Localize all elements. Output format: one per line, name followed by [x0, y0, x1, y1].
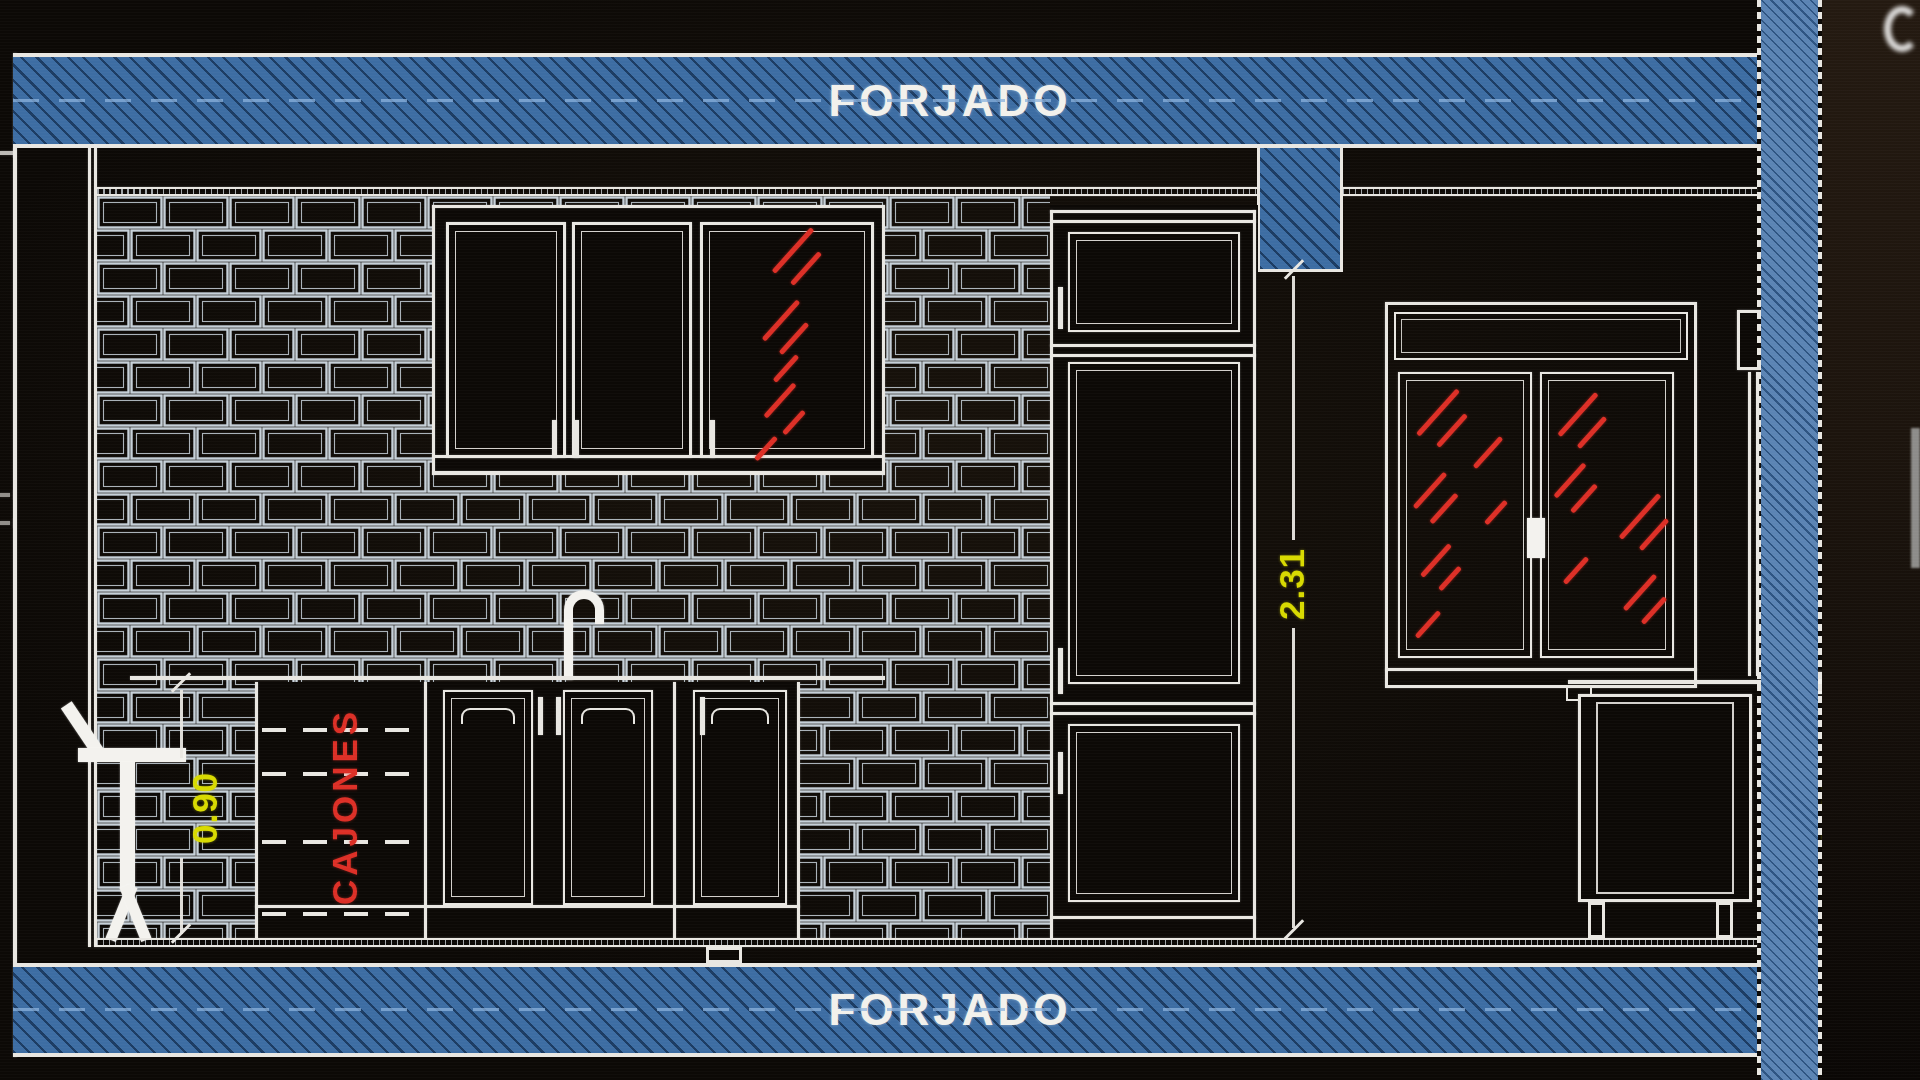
door-handle — [1058, 648, 1063, 694]
cabinet-foot — [1716, 902, 1733, 938]
drawer-unit-left — [255, 682, 258, 938]
tall-cabinet-rail — [1050, 354, 1256, 357]
door-panel-detail — [461, 708, 515, 724]
screen-glare — [1884, 6, 1920, 52]
base-unit-right — [797, 682, 800, 938]
tall-cabinet-top — [1050, 220, 1256, 223]
unit-divider — [673, 682, 676, 938]
stool-post — [120, 762, 135, 888]
drawers-label: CAJONES — [325, 725, 365, 905]
slab-centerline — [13, 1008, 1757, 1011]
ceiling-line — [97, 187, 1257, 196]
door-handle — [700, 697, 705, 735]
dim-left-line — [180, 690, 183, 758]
upper-cabinet-right — [882, 205, 885, 475]
dim-231-label: 2.31 — [1272, 539, 1312, 629]
upper-cabinet-door-2 — [572, 222, 692, 458]
edge-tick — [0, 521, 10, 525]
tall-cabinet-rail — [1050, 712, 1256, 715]
screen-edge-reflection — [1911, 428, 1920, 568]
door-panel-detail — [581, 708, 635, 724]
door-panel-detail — [711, 708, 769, 724]
right-wall-band — [1761, 0, 1818, 1080]
dim-left-label: 0.90 — [185, 763, 225, 853]
door-handle — [710, 420, 715, 458]
tall-cabinet-mid-door — [1068, 362, 1240, 684]
window-transom-inner — [1401, 319, 1681, 353]
faucet-stem — [564, 620, 573, 680]
door-handle — [574, 420, 579, 458]
tall-cabinet-rail — [1050, 702, 1256, 705]
cabinet-foot — [1588, 902, 1605, 938]
edge-tick — [0, 493, 10, 497]
door-handle — [538, 697, 543, 735]
right-wall-band-edge — [1818, 0, 1822, 1080]
drawer-unit-right — [424, 682, 427, 938]
door-handle — [1058, 752, 1063, 794]
frame-left-border — [13, 53, 17, 1057]
window-handle — [1527, 518, 1545, 558]
cad-screen-photo: FORJADO FORJADO — [0, 0, 1920, 1080]
tall-cabinet-left — [1050, 210, 1053, 938]
door-handle — [552, 420, 557, 458]
tall-cabinet-base — [1050, 916, 1256, 919]
dim-231-line — [1292, 276, 1295, 540]
ceiling-line — [1343, 187, 1757, 196]
drawer-dashed-line — [262, 912, 420, 916]
beam-column — [1257, 148, 1343, 272]
upper-cabinet-door-1 — [446, 222, 566, 458]
tall-cabinet-right — [1253, 210, 1256, 938]
cabinet-foot — [706, 947, 742, 963]
door-handle — [1058, 287, 1063, 329]
upper-cabinet-top — [432, 205, 885, 208]
plinth-line — [255, 905, 800, 908]
window-sill — [1385, 668, 1697, 671]
window-sash-right — [1540, 372, 1674, 658]
tall-cabinet-rail — [1050, 344, 1256, 347]
edge-tick — [0, 151, 13, 155]
photo-background-right — [1822, 0, 1920, 1080]
dim-231-line — [1292, 628, 1295, 928]
left-wall-line — [88, 148, 91, 947]
tall-cabinet-lower-door — [1068, 724, 1240, 902]
bottom-slab-band: FORJADO — [13, 963, 1757, 1057]
right-wall-band-edge — [1757, 0, 1761, 1080]
elevation-drawing: FORJADO FORJADO — [0, 0, 1920, 1080]
faucet — [564, 590, 604, 624]
right-base-cabinet-door — [1596, 702, 1734, 894]
slab-centerline — [13, 99, 1757, 102]
tall-cabinet-top — [1050, 210, 1256, 213]
countertop — [130, 676, 885, 680]
dim-left-line — [180, 858, 183, 934]
tall-cabinet-upper-door — [1068, 232, 1240, 332]
top-slab-band: FORJADO — [13, 53, 1757, 148]
door-handle — [556, 697, 561, 735]
upper-cabinet-left — [432, 205, 435, 475]
wall-inner-line — [1748, 372, 1751, 676]
stool-seat — [78, 748, 186, 762]
upper-cabinet-bottom — [432, 471, 885, 475]
floor-line — [97, 938, 1757, 947]
